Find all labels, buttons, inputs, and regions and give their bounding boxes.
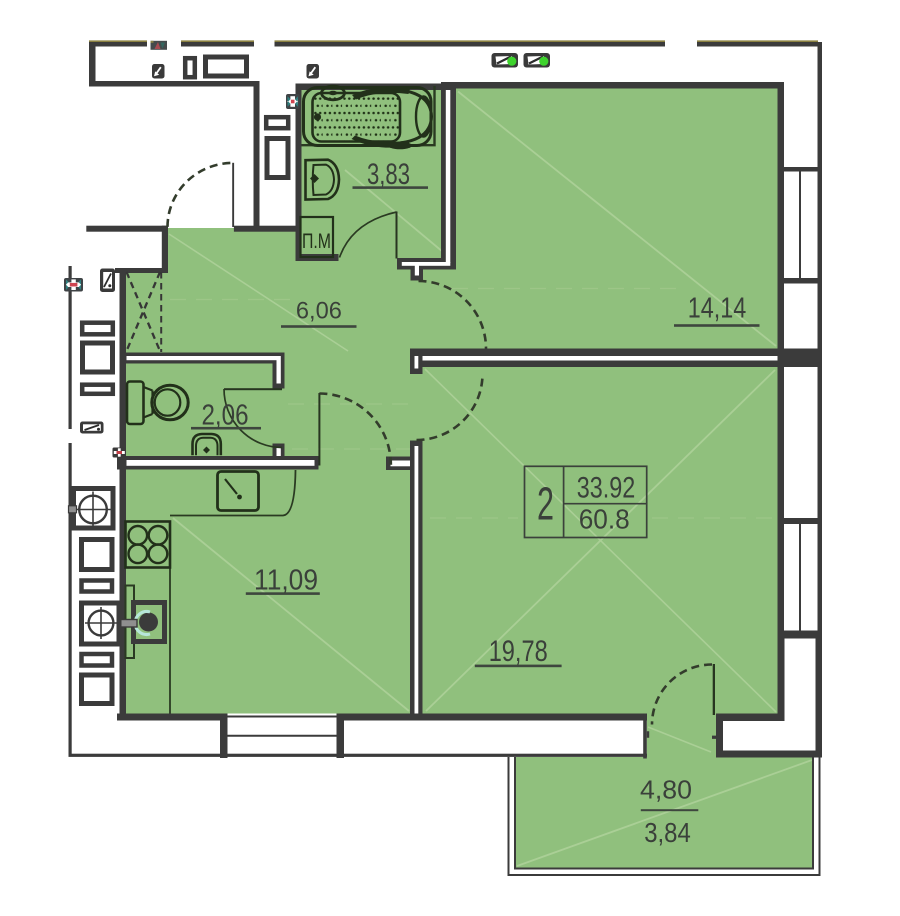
- svg-text:14,14: 14,14: [688, 293, 747, 325]
- svg-text:19,78: 19,78: [489, 635, 548, 668]
- svg-text:33.92: 33.92: [577, 472, 636, 505]
- svg-text:6,06: 6,06: [296, 298, 342, 325]
- svg-text:2: 2: [537, 478, 554, 530]
- svg-text:П.М: П.М: [302, 230, 331, 253]
- svg-text:4,80: 4,80: [640, 777, 692, 805]
- svg-text:3,84: 3,84: [644, 817, 691, 848]
- svg-text:11,09: 11,09: [254, 565, 318, 597]
- svg-text:3,83: 3,83: [367, 158, 410, 191]
- svg-text:60.8: 60.8: [579, 504, 630, 535]
- svg-text:2,06: 2,06: [202, 400, 249, 432]
